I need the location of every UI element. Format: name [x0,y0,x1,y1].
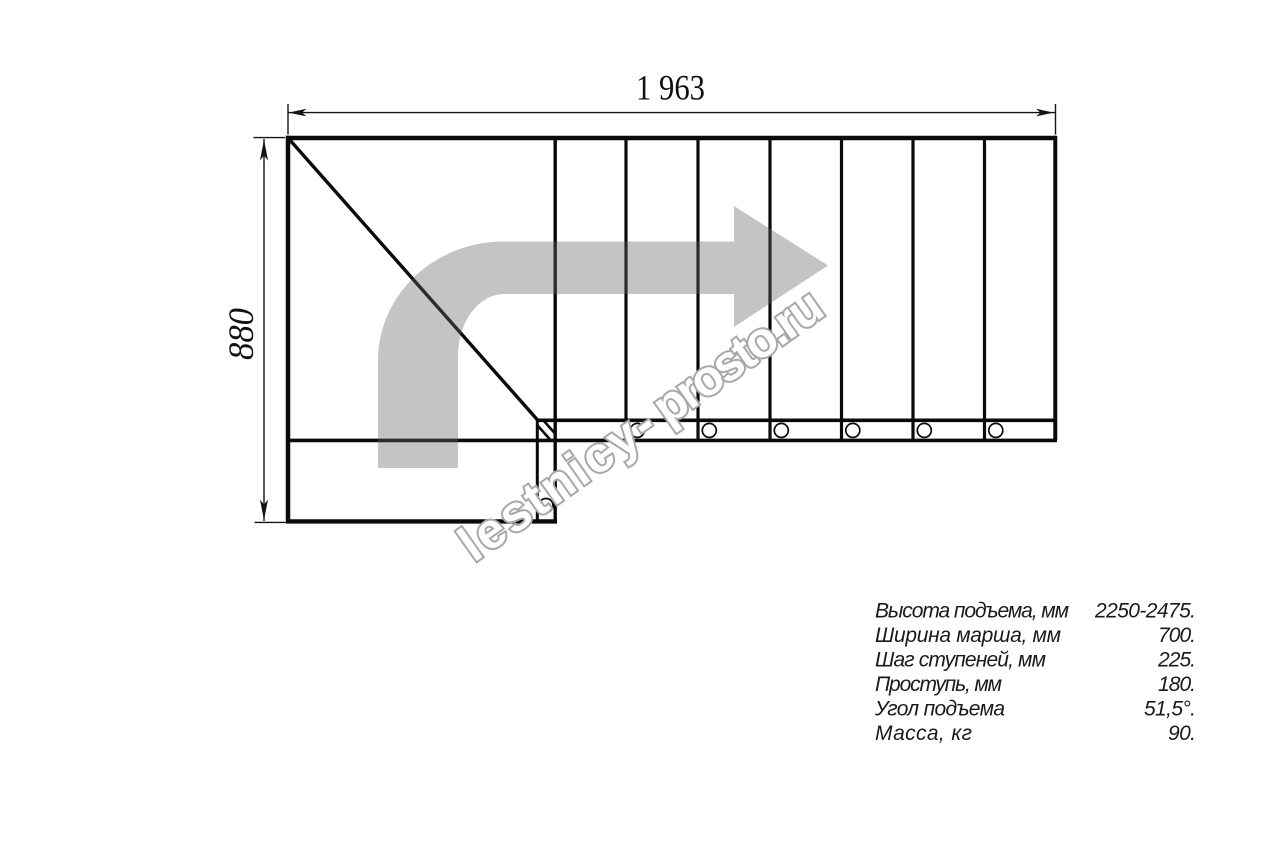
svg-text:Шаг ступеней, мм: Шаг ступеней, мм [875,648,1046,671]
svg-text:Масса, кг: Масса, кг [875,722,972,745]
svg-text:Проступь, мм: Проступь, мм [875,673,1002,696]
svg-text:225.: 225. [1157,648,1196,671]
svg-text:Угол подъема: Угол подъема [874,698,1005,721]
svg-text:51,5°.: 51,5°. [1144,698,1196,721]
svg-text:180.: 180. [1158,673,1196,696]
svg-text:Ширина марша, мм: Ширина марша, мм [875,624,1061,647]
svg-text:2250-2475.: 2250-2475. [1094,599,1196,622]
svg-text:90.: 90. [1168,722,1196,745]
svg-text:Высота подъема, мм: Высота подъема, мм [875,599,1069,622]
svg-text:1 963: 1 963 [636,68,705,108]
svg-text:700.: 700. [1158,624,1196,647]
svg-text:880: 880 [221,308,261,360]
